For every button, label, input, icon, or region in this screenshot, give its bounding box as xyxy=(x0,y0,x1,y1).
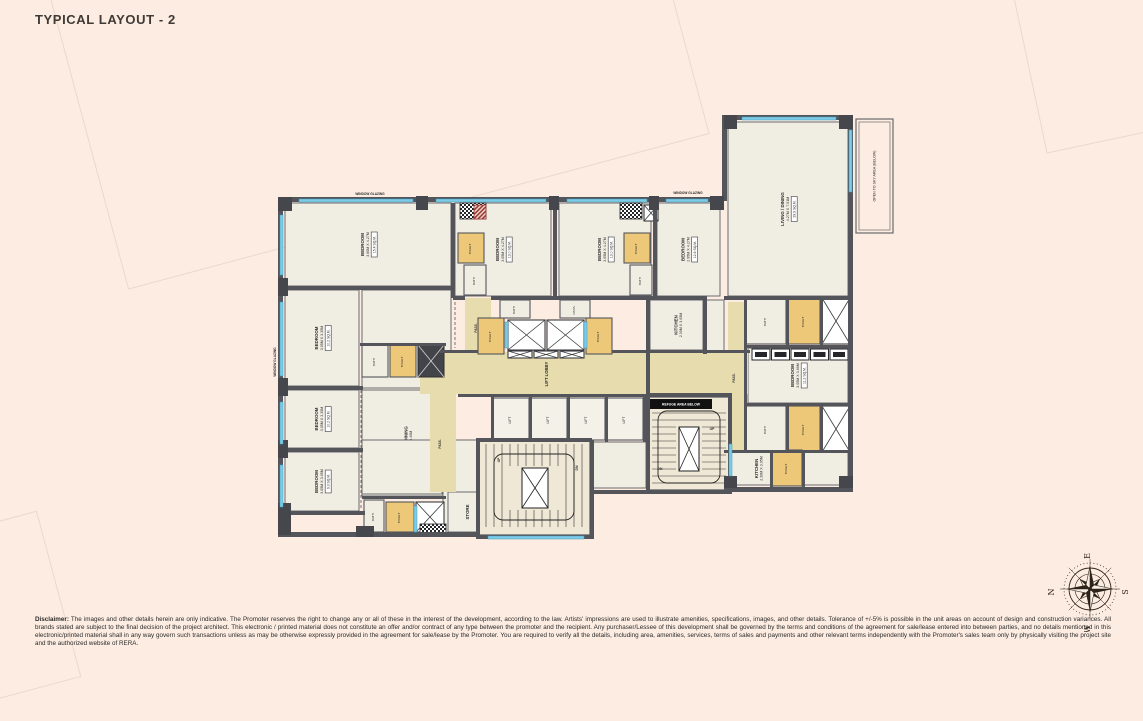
svg-text:LIFT: LIFT xyxy=(584,417,588,424)
svg-text:3.05M X 3.35M: 3.05M X 3.35M xyxy=(320,326,324,350)
plan-label: PASS. xyxy=(474,323,478,332)
wall xyxy=(724,487,853,492)
svg-text:BEDROOM: BEDROOM xyxy=(597,238,602,261)
svg-text:10.2 SQ.M.: 10.2 SQ.M. xyxy=(327,410,331,427)
wall xyxy=(491,296,707,300)
bath: PASS. xyxy=(560,300,590,318)
wall xyxy=(281,448,363,452)
room-label: BEDROOM3.05M X 4.27M13.0 SQ.M. xyxy=(597,237,614,262)
disclaimer-body: The images and other details herein are … xyxy=(35,616,1111,647)
svg-text:PASS.: PASS. xyxy=(474,323,478,332)
room-label: BEDROOM3.05M X 4.27M13.0 SQ.M. xyxy=(495,237,512,262)
lift: LIFT xyxy=(607,398,643,440)
svg-text:BEDROOM: BEDROOM xyxy=(790,364,795,387)
svg-text:TOILET: TOILET xyxy=(801,317,805,328)
svg-text:3.05M X 4.27M: 3.05M X 4.27M xyxy=(603,237,607,261)
bath: BATH xyxy=(464,265,486,295)
wall xyxy=(605,396,608,442)
wall xyxy=(703,296,707,354)
wall xyxy=(643,396,646,442)
room-label: BEDROOM3.05M X 3.66M11.2 SQ.M. xyxy=(790,363,807,388)
window xyxy=(505,322,508,348)
shaft xyxy=(534,351,558,358)
plan-label: WINDOW GLAZING xyxy=(273,347,277,377)
room: BEDROOM3.05M X 3.35M10.2 SQ.M. xyxy=(285,390,359,448)
wall xyxy=(458,394,648,397)
room xyxy=(592,442,646,488)
wall-pier xyxy=(839,115,853,129)
window xyxy=(567,199,647,202)
svg-text:UP: UP xyxy=(497,457,501,462)
wall-pier xyxy=(416,196,428,210)
window xyxy=(280,215,283,275)
svg-text:11.2 SQ.M.: 11.2 SQ.M. xyxy=(803,367,807,384)
plan-label: PASS. xyxy=(732,373,736,382)
svg-text:PASS.: PASS. xyxy=(438,439,442,448)
wall xyxy=(646,393,650,493)
svg-text:KITCHEN: KITCHEN xyxy=(754,459,759,479)
window xyxy=(280,302,283,376)
svg-text:13.0 SQ.M.: 13.0 SQ.M. xyxy=(508,241,512,258)
svg-text:WINDOW GLAZING: WINDOW GLAZING xyxy=(673,191,703,195)
bath: BATH xyxy=(362,345,388,377)
lift: LIFT xyxy=(493,398,529,440)
window xyxy=(488,536,584,539)
wall xyxy=(646,490,732,494)
plan-label: UP xyxy=(710,427,715,431)
room: BEDROOM2.95M X 4.27M12.6 SQ.M. xyxy=(657,203,720,296)
wall xyxy=(646,393,732,397)
plan-label: DN xyxy=(575,465,579,470)
bath: BATH xyxy=(746,406,786,452)
wall xyxy=(453,296,465,300)
toilet: TOILET xyxy=(386,502,414,532)
corridor xyxy=(430,394,456,492)
svg-text:29.9 SQ.M.: 29.9 SQ.M. xyxy=(793,200,797,217)
svg-text:S: S xyxy=(1121,589,1130,594)
shaft xyxy=(508,351,532,358)
svg-text:KITCHEN: KITCHEN xyxy=(674,315,679,335)
dark-shaft xyxy=(418,345,444,377)
svg-text:WINDOW GLAZING: WINDOW GLAZING xyxy=(355,192,385,196)
wall xyxy=(590,440,594,538)
wall xyxy=(653,203,657,298)
wall-pier xyxy=(278,278,288,296)
wall-pier xyxy=(724,476,737,488)
wall xyxy=(612,350,750,353)
wall-pier xyxy=(278,503,291,535)
svg-text:WINDOW GLAZING: WINDOW GLAZING xyxy=(273,347,277,377)
decor-square-right xyxy=(998,0,1143,154)
wall xyxy=(491,396,494,442)
svg-text:3.05M X 4.27M: 3.05M X 4.27M xyxy=(501,237,505,261)
wall xyxy=(820,296,823,345)
room xyxy=(705,300,724,352)
shaft xyxy=(547,320,584,350)
shaft xyxy=(560,351,584,358)
staircase xyxy=(478,440,590,535)
bath: BATH xyxy=(746,298,786,344)
svg-text:3.60M X 4.27M: 3.60M X 4.27M xyxy=(366,232,370,256)
wall xyxy=(744,403,850,406)
room-label: BEDROOM3.05M X 3.35M10.2 SQ.M. xyxy=(314,407,331,432)
wall xyxy=(786,403,789,452)
room-label: KITCHEN2.30M X 3.05M xyxy=(754,456,764,480)
disclaimer-label: Disclaimer: xyxy=(35,616,69,623)
svg-text:4.27M X 7.01M: 4.27M X 7.01M xyxy=(786,197,790,221)
bath: BATH xyxy=(500,300,530,318)
toilet: TOILET xyxy=(788,406,820,452)
wall xyxy=(567,396,570,442)
svg-text:10.2 SQ.M.: 10.2 SQ.M. xyxy=(327,329,331,346)
toilet: TOILET xyxy=(586,318,612,354)
svg-text:TOILET: TOILET xyxy=(488,332,492,343)
window xyxy=(414,506,417,532)
svg-text:TOILET: TOILET xyxy=(801,425,805,436)
wall xyxy=(281,286,453,290)
wall xyxy=(646,296,650,396)
svg-text:PASS.: PASS. xyxy=(572,305,576,314)
svg-text:BATH: BATH xyxy=(512,306,516,314)
floor-plan: BEDROOM3.60M X 4.27M15.4 SQ.M.BEDROOM3.0… xyxy=(270,105,900,550)
wall xyxy=(786,296,789,345)
red-duct xyxy=(474,205,486,219)
wall xyxy=(360,343,446,346)
room: BEDROOM3.05M X 3.35M10.2 SQ.M. xyxy=(285,290,359,386)
plan-label: WINDOW GLAZING xyxy=(355,192,385,196)
window xyxy=(436,199,546,202)
svg-text:TOILET: TOILET xyxy=(596,332,600,343)
plan-label: PASS. xyxy=(438,439,442,448)
svg-text:2.30M X 3.05M: 2.30M X 3.05M xyxy=(760,456,764,480)
wall-pier xyxy=(724,115,737,129)
svg-text:BEDROOM: BEDROOM xyxy=(360,233,365,256)
window xyxy=(849,130,852,192)
svg-text:LIFT: LIFT xyxy=(622,417,626,424)
page: { "title": "TYPICAL LAYOUT - 2", "colors… xyxy=(0,0,1143,643)
room-label: BEDROOM2.95M X 4.27M12.6 SQ.M. xyxy=(681,237,698,262)
room-label: BEDROOM3.60M X 4.27M15.4 SQ.M. xyxy=(360,232,377,257)
wall xyxy=(362,496,446,499)
room: BEDROOM3.05M X 3.05M9.3 SQ.M. xyxy=(285,452,359,511)
wall-pier xyxy=(649,196,659,210)
wall-pier xyxy=(356,526,374,537)
wall xyxy=(802,450,805,487)
svg-text:BATH: BATH xyxy=(371,513,375,521)
svg-text:LIFT: LIFT xyxy=(508,417,512,424)
svg-text:BEDROOM: BEDROOM xyxy=(314,326,319,349)
duct xyxy=(620,203,642,219)
room-label: BEDROOM3.05M X 3.35M10.2 SQ.M. xyxy=(314,326,331,351)
toilet: TOILET xyxy=(624,233,650,263)
toilet: TOILET xyxy=(772,450,802,486)
svg-text:9.3 SQ.M.: 9.3 SQ.M. xyxy=(327,474,331,489)
svg-text:N: N xyxy=(1047,589,1056,596)
room: LIVING / DINING4.27M X 7.01M29.9 SQ.M. xyxy=(728,122,848,296)
wall-pier xyxy=(278,197,292,211)
annotation-box: OPEN TO SKY AREA (BELOW) xyxy=(856,119,893,233)
svg-text:STORE: STORE xyxy=(465,504,470,519)
svg-text:BATH: BATH xyxy=(372,358,376,366)
room-label: KITCHEN2.30M X 3.05M xyxy=(674,313,684,337)
svg-text:LIFT: LIFT xyxy=(546,417,550,424)
svg-text:2.30M X 3.05M: 2.30M X 3.05M xyxy=(679,313,683,337)
svg-text:PASS.: PASS. xyxy=(732,373,736,382)
toilet: TOILET xyxy=(788,298,820,344)
wall xyxy=(281,386,363,390)
window xyxy=(666,199,708,202)
plan-label: LIFT LOBBY xyxy=(544,361,549,386)
window xyxy=(742,117,836,120)
svg-text:BATH: BATH xyxy=(763,318,767,326)
svg-text:2.95M X 4.27M: 2.95M X 4.27M xyxy=(686,237,690,261)
wall xyxy=(281,511,365,515)
wall xyxy=(820,403,823,452)
svg-text:DN: DN xyxy=(658,467,663,471)
svg-text:3.05M X 3.35M: 3.05M X 3.35M xyxy=(320,407,324,431)
plan-label: DN xyxy=(658,467,663,471)
room-label: STORE xyxy=(465,504,470,519)
plan-label: UP xyxy=(497,457,501,462)
svg-text:LIVING / DINING: LIVING / DINING xyxy=(780,192,785,226)
wardrobe-row xyxy=(752,349,848,360)
wall-pier xyxy=(278,378,288,396)
wall xyxy=(476,438,480,538)
svg-text:TOILET: TOILET xyxy=(634,244,638,255)
plan-label: WINDOW GLAZING xyxy=(673,191,703,195)
svg-text:REFUGE AREA BELOW: REFUGE AREA BELOW xyxy=(662,402,701,406)
room: BEDROOM3.60M X 4.27M15.4 SQ.M. xyxy=(285,203,451,286)
wall-pier xyxy=(839,476,853,488)
svg-text:BEDROOM: BEDROOM xyxy=(681,238,686,261)
toilet: TOILET xyxy=(458,233,484,263)
window xyxy=(280,402,283,444)
lift: LIFT xyxy=(569,398,605,440)
svg-text:DN: DN xyxy=(575,465,579,470)
room: KITCHEN2.30M X 3.05M xyxy=(650,300,703,350)
window xyxy=(584,322,587,348)
wall xyxy=(590,490,650,494)
svg-text:BATH: BATH xyxy=(472,277,476,285)
svg-text:3.05M X 3.66M: 3.05M X 3.66M xyxy=(796,363,800,387)
wall xyxy=(478,438,592,442)
svg-text:15.4 SQ.M.: 15.4 SQ.M. xyxy=(373,236,377,253)
toilet: TOILET xyxy=(478,318,504,354)
shaft xyxy=(822,406,850,452)
wall xyxy=(744,296,747,452)
wall xyxy=(529,396,532,442)
wall xyxy=(440,350,478,353)
lift: LIFT xyxy=(531,398,567,440)
svg-text:LIFT LOBBY: LIFT LOBBY xyxy=(544,361,549,386)
wall-pier xyxy=(549,196,559,210)
svg-text:TOILET: TOILET xyxy=(400,357,404,368)
shaft xyxy=(508,320,545,350)
svg-text:BEDROOM: BEDROOM xyxy=(314,470,319,493)
wall xyxy=(770,450,773,487)
svg-text:TOILET: TOILET xyxy=(468,244,472,255)
window xyxy=(299,199,413,202)
room-label: BEDROOM3.05M X 3.05M9.3 SQ.M. xyxy=(314,469,331,493)
wall xyxy=(724,450,853,453)
fire-staircase xyxy=(648,397,730,490)
wall xyxy=(278,532,480,537)
window xyxy=(280,465,283,507)
svg-text:TOILET: TOILET xyxy=(784,464,788,475)
svg-text:BATH: BATH xyxy=(638,277,642,285)
svg-text:BEDROOM: BEDROOM xyxy=(314,407,319,430)
refuge-band: REFUGE AREA BELOW xyxy=(650,399,712,409)
page-title: TYPICAL LAYOUT - 2 xyxy=(35,12,176,27)
svg-text:UP: UP xyxy=(710,427,715,431)
wall-pier xyxy=(710,196,724,210)
svg-text:E: E xyxy=(1083,553,1092,559)
wall xyxy=(553,203,557,298)
svg-text:BEDROOM: BEDROOM xyxy=(495,238,500,261)
toilet: TOILET xyxy=(390,345,416,377)
shaft xyxy=(822,298,850,344)
svg-text:TOILET: TOILET xyxy=(397,513,401,524)
svg-text:BATH: BATH xyxy=(763,426,767,434)
svg-text:13.0 SQ.M.: 13.0 SQ.M. xyxy=(610,241,614,258)
bath: BATH xyxy=(630,265,652,295)
wall xyxy=(451,203,455,298)
svg-text:12.6 SQ.M.: 12.6 SQ.M. xyxy=(693,241,697,258)
window xyxy=(729,444,732,476)
svg-text:3.05M X 3.05M: 3.05M X 3.05M xyxy=(320,469,324,493)
svg-text:OPEN TO SKY AREA (BELOW): OPEN TO SKY AREA (BELOW) xyxy=(873,151,877,202)
wall xyxy=(744,345,850,348)
